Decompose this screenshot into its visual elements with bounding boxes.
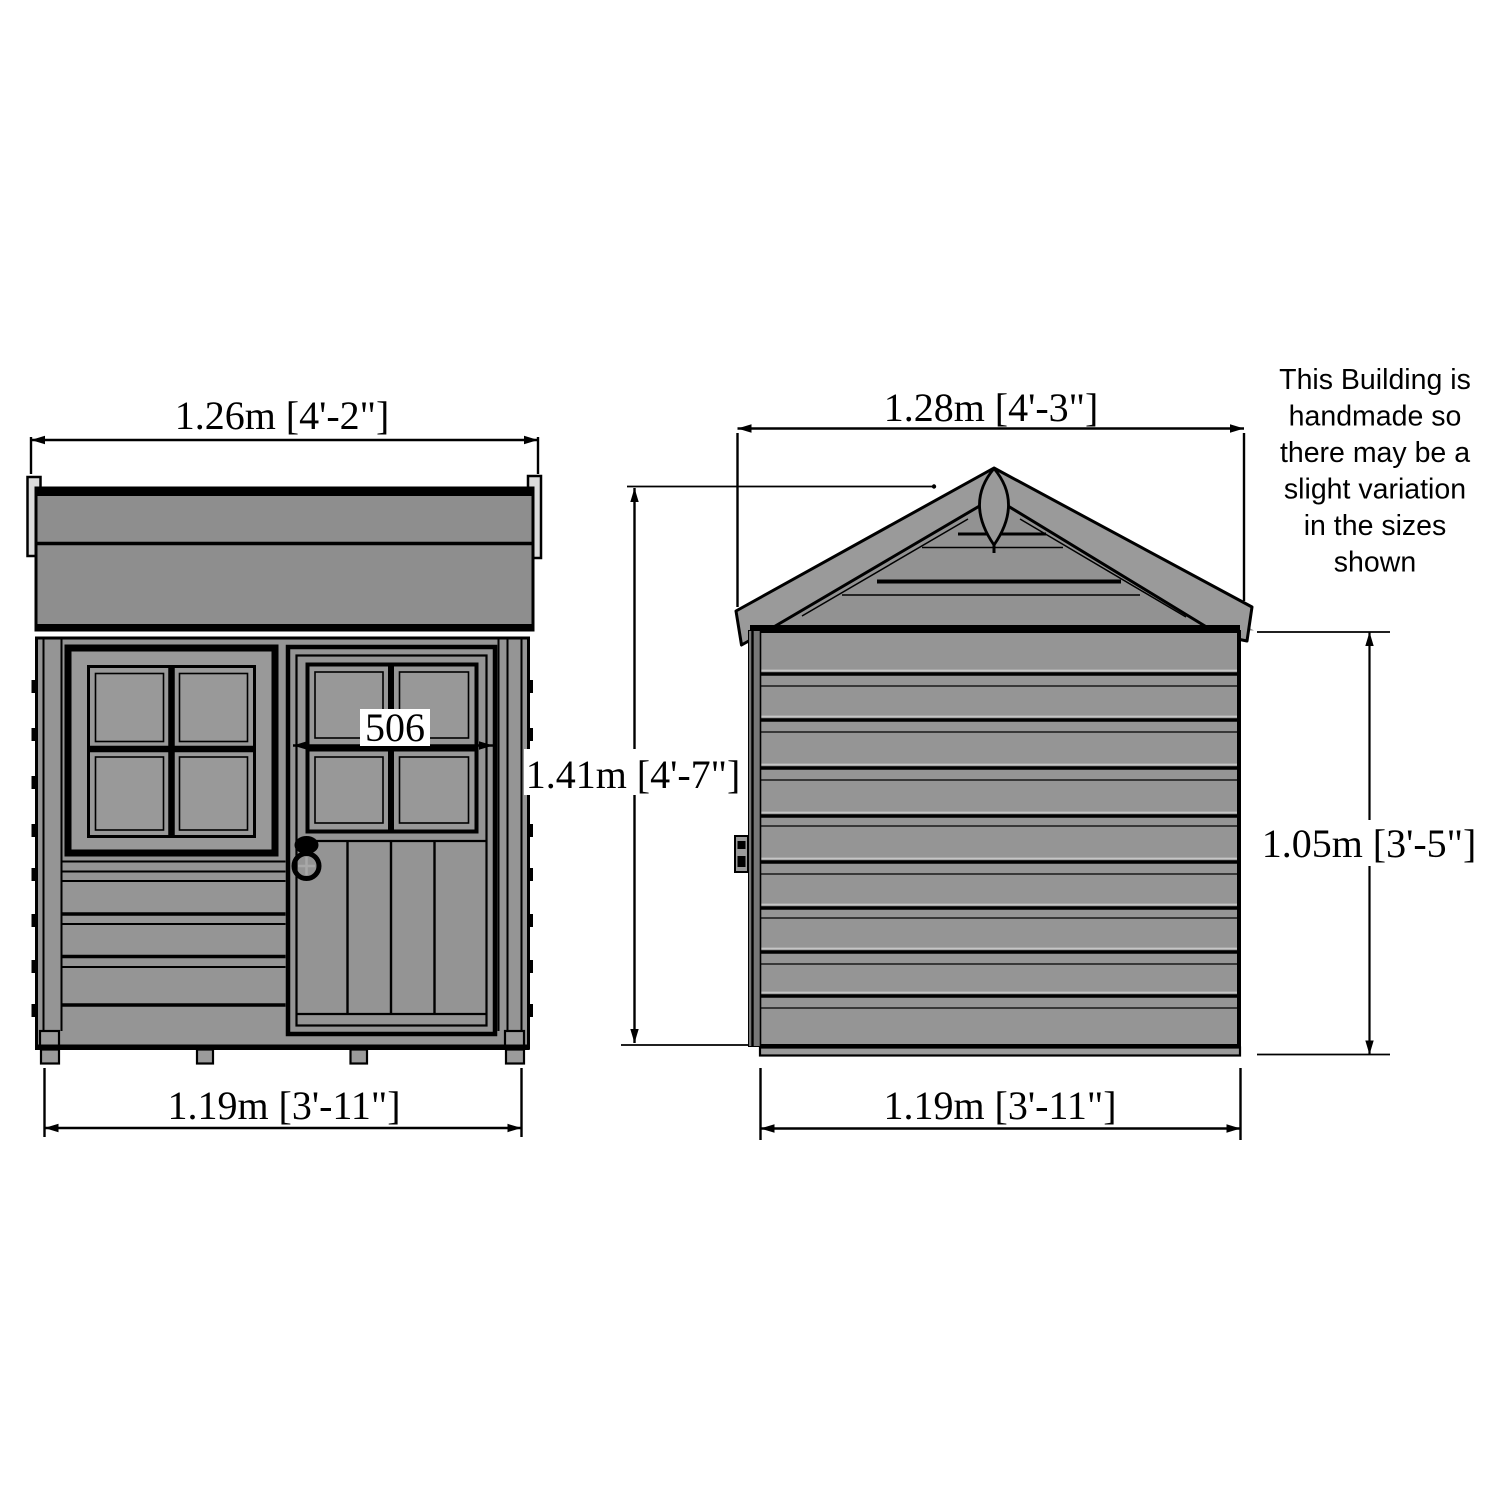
- svg-text:shown: shown: [1334, 547, 1416, 579]
- svg-text:1.26m [4'-2"]: 1.26m [4'-2"]: [175, 393, 390, 438]
- svg-text:1.05m [3'-5"]: 1.05m [3'-5"]: [1262, 821, 1477, 866]
- svg-text:there may be a: there may be a: [1280, 437, 1470, 469]
- svg-text:1.19m [3'-11"]: 1.19m [3'-11"]: [883, 1083, 1116, 1128]
- svg-text:handmade so: handmade so: [1289, 401, 1462, 433]
- svg-text:This Building is: This Building is: [1279, 364, 1471, 396]
- svg-text:in the sizes: in the sizes: [1304, 510, 1447, 542]
- svg-text:slight variation: slight variation: [1284, 474, 1466, 506]
- svg-text:1.41m [4'-7"]: 1.41m [4'-7"]: [526, 752, 741, 797]
- svg-text:1.28m [4'-3"]: 1.28m [4'-3"]: [884, 385, 1099, 430]
- svg-text:506: 506: [365, 705, 425, 750]
- svg-text:1.19m [3'-11"]: 1.19m [3'-11"]: [167, 1083, 400, 1128]
